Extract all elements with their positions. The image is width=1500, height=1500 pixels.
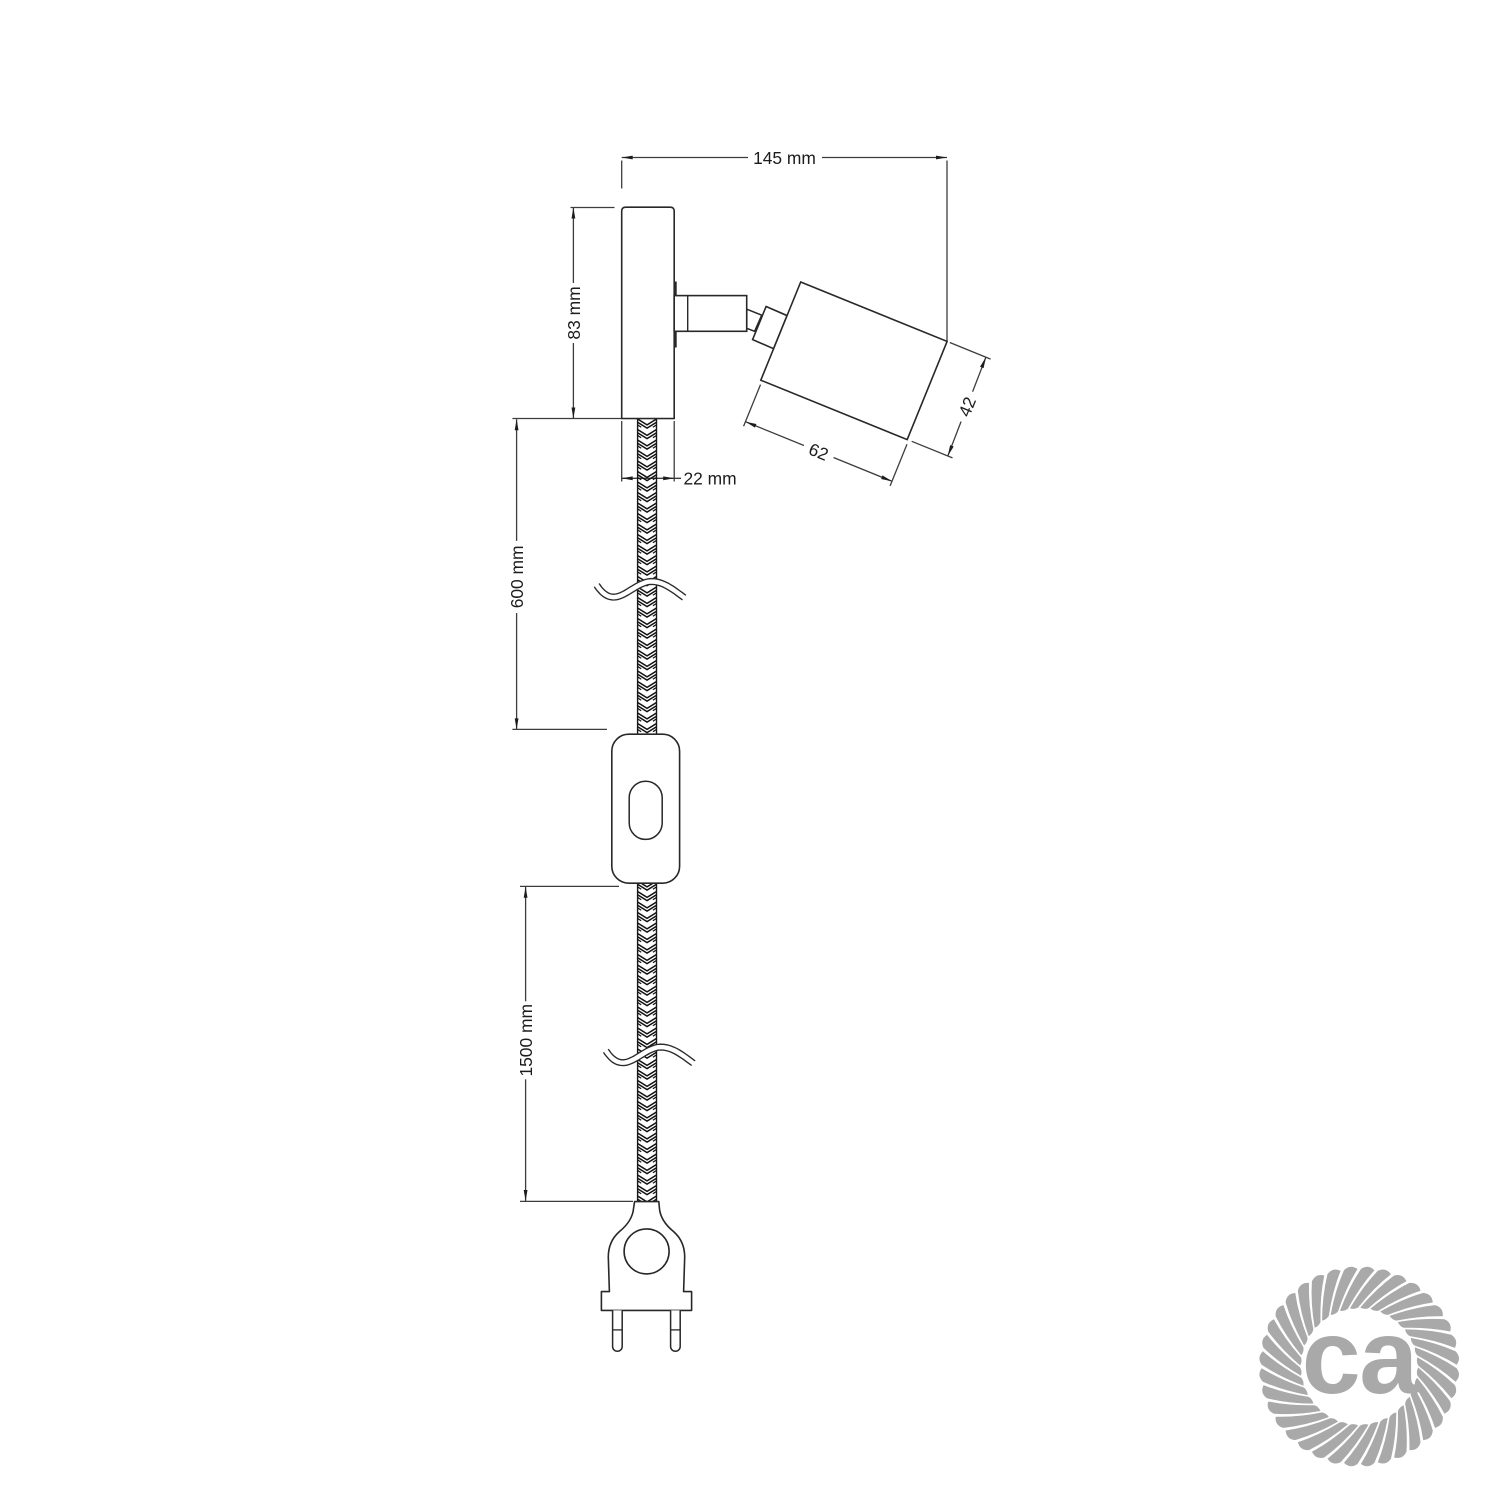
svg-text:22 mm: 22 mm [684,469,737,489]
svg-text:145 mm: 145 mm [753,148,816,168]
svg-text:83 mm: 83 mm [564,286,584,339]
svg-text:ca: ca [1302,1298,1419,1416]
svg-text:1500 mm: 1500 mm [516,1004,536,1077]
svg-text:600 mm: 600 mm [507,545,527,608]
